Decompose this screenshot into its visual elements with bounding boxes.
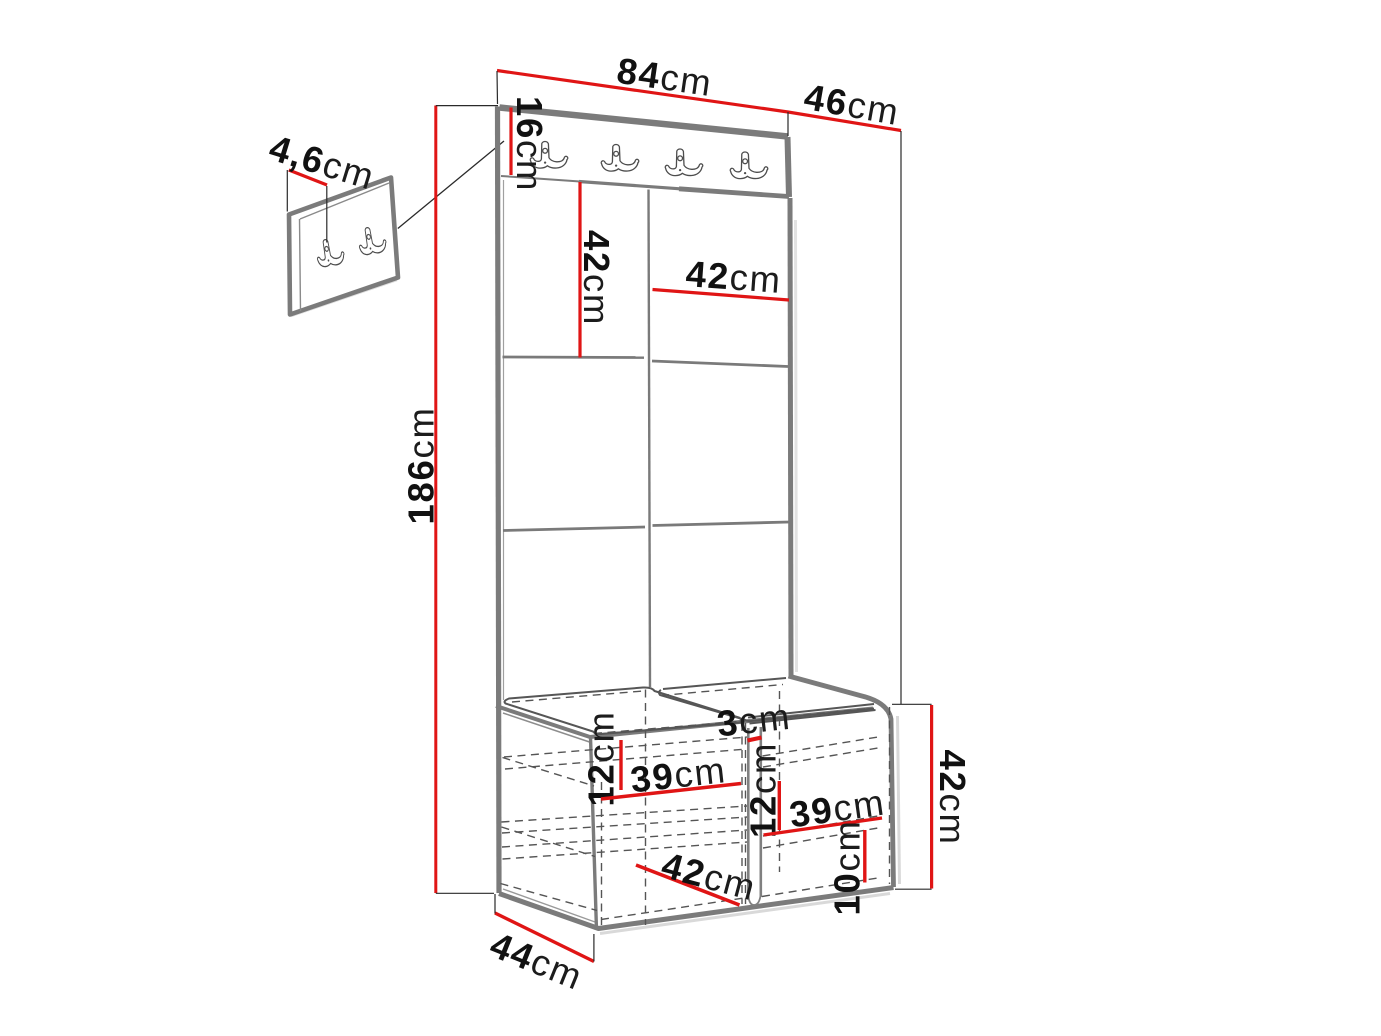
svg-text:12cm: 12cm (581, 710, 622, 806)
svg-text:186cm: 186cm (401, 406, 442, 524)
svg-text:42cm: 42cm (932, 750, 973, 846)
svg-text:42cm: 42cm (576, 230, 617, 326)
svg-text:42cm: 42cm (684, 253, 783, 301)
svg-text:10cm: 10cm (827, 819, 868, 915)
svg-text:16cm: 16cm (509, 96, 550, 192)
svg-text:12cm: 12cm (743, 742, 784, 838)
svg-text:3cm: 3cm (715, 696, 793, 745)
